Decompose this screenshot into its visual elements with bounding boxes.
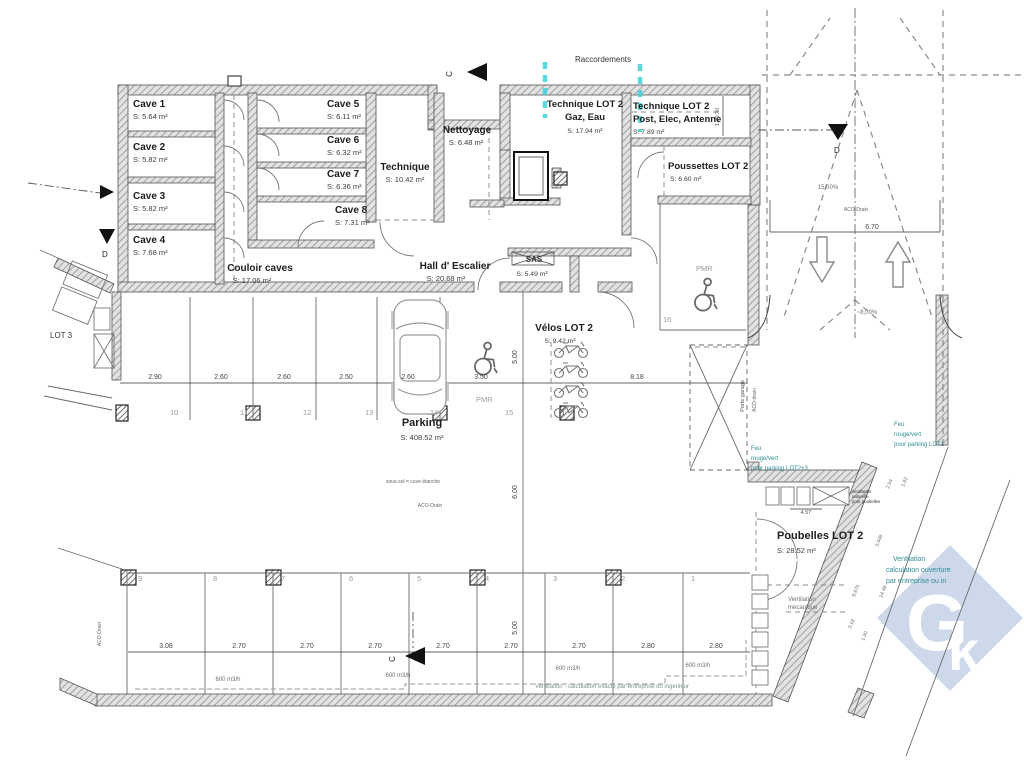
room-label-poubelles: Poubelles LOT 2 <box>777 530 863 542</box>
section-marker-c-bottom <box>405 647 425 665</box>
wheelchair-icon <box>475 342 497 374</box>
structural-columns <box>116 172 621 585</box>
feu2-1: Feu <box>751 446 761 452</box>
room-label-velos: Vélos LOT 2 <box>535 323 593 334</box>
room-sub-tech-lot2-post: Post, Elec, Antenne <box>633 114 721 125</box>
dim-600: 6.00 <box>512 485 519 499</box>
vent-note: Ventilation - calculation exacte par ent… <box>535 684 689 690</box>
dim-diag-2: 3.449 <box>874 534 884 548</box>
ramp-down-arrow <box>810 237 834 282</box>
dim-upper-3: 2.50 <box>339 374 353 381</box>
marker-d-right: D <box>834 146 840 155</box>
section-marker-c-top <box>467 63 487 81</box>
space-10: 10 <box>170 408 178 417</box>
room-area-hall: S: 20.68 m² <box>427 274 466 283</box>
space-2: 2 <box>621 574 625 583</box>
feu1-1: Feu <box>894 422 904 428</box>
space-5: 5 <box>417 574 421 583</box>
dim-500-lower: 5.00 <box>512 621 519 635</box>
dim-diag-5: 1.30 <box>860 630 869 641</box>
room-area-poussettes: S: 6.60 m² <box>670 176 702 183</box>
vent-teal-3: par entreprise ou in <box>886 578 946 585</box>
room-label-cave2: Cave 2 <box>133 142 166 153</box>
dim-diag-1: 1.62 <box>900 476 909 487</box>
aco-drain-left: ACO-Drain <box>97 622 103 647</box>
wheelchair-icon-16 <box>695 278 717 310</box>
slope-garage: ~8,00% <box>857 310 878 316</box>
vent-nat-3: pour poubelles <box>852 499 880 504</box>
dim-lower-2: 2.70 <box>300 643 314 650</box>
floor-plan-canvas: G k <box>0 0 1024 768</box>
raccordements-label: Raccordements <box>575 55 631 64</box>
feu1-2: rouge/vert <box>894 432 921 438</box>
lot3-label: LOT 3 <box>50 331 73 340</box>
car-icon <box>391 300 449 414</box>
dim-upper-right: 8.18 <box>630 374 644 381</box>
space-16: 16 <box>663 315 671 324</box>
dim-lower-0: 3.08 <box>159 643 173 650</box>
dim-upper-4: 2.60 <box>401 374 415 381</box>
space-12: 12 <box>303 408 311 417</box>
room-area-poubelles: S: 28.52 m² <box>777 546 816 555</box>
dim-diag-3: 8.675 <box>851 584 861 598</box>
vent-teal-2: calculation ouverture <box>886 567 951 574</box>
elevator-icon <box>514 152 548 200</box>
dim-upper-2: 2.60 <box>277 374 291 381</box>
door-arcs <box>224 100 797 601</box>
airflow-3: 600 m3/h <box>555 666 580 672</box>
room-area-nettoyage: S: 6.48 m² <box>449 138 484 147</box>
section-marker-d-left <box>99 229 115 244</box>
marker-c-bottom: C <box>388 656 397 662</box>
feu2-3: pour parking LOT2+3 <box>751 466 809 472</box>
slope-ramp: 15,00% <box>818 185 839 191</box>
dim-lower-5: 2.70 <box>504 643 518 650</box>
room-label-tech-lot2-gaz: Technique LOT 2 <box>547 99 623 110</box>
room-area-cave5: S: 6.11 m² <box>327 112 362 121</box>
room-area-cave8: S: 7.31 m² <box>335 218 370 227</box>
dim-457: 4.57 <box>801 510 812 516</box>
space-6: 6 <box>349 574 353 583</box>
room-area-cave2: S: 5.82 m² <box>133 155 168 164</box>
space-9: 9 <box>138 574 142 583</box>
room-area-cave4: S: 7.68 m² <box>133 248 168 257</box>
feu1-3: pour parking LOT1 <box>894 442 945 448</box>
pmr-label-16: PMR <box>696 264 713 273</box>
dim-lower-1: 2.70 <box>232 643 246 650</box>
aco-drain-gate: ACO-drain <box>752 388 758 412</box>
aco-drain-ramp: ACO-Drain <box>844 207 869 213</box>
dim-12030: 1.20.30 <box>715 108 721 126</box>
room-label-hall: Hall d' Escalier <box>420 261 491 272</box>
dim-upper-1: 2.60 <box>214 374 228 381</box>
space-7: 7 <box>281 574 285 583</box>
room-label-technique: Technique <box>380 162 430 173</box>
space-13: 13 <box>365 408 373 417</box>
room-label-cave7: Cave 7 <box>327 169 360 180</box>
room-label-cave6: Cave 6 <box>327 135 360 146</box>
dim-lower-4: 2.70 <box>436 643 450 650</box>
dim-ramp-width: 6.70 <box>865 224 879 231</box>
bike-icon <box>555 362 588 378</box>
room-label-couloir: Couloir caves <box>227 263 293 274</box>
section-marker-e <box>100 185 114 199</box>
vent-mech-1: Ventilation <box>788 597 816 603</box>
dim-diag-0: 2.54 <box>885 478 894 489</box>
marker-d-left: D <box>102 250 108 259</box>
porte-garage-label: Porte garage <box>740 380 746 412</box>
room-label-parking: Parking <box>402 417 442 429</box>
dim-lower-6: 2.70 <box>572 643 586 650</box>
space-1: 1 <box>691 574 695 583</box>
pmr-label-15: PMR <box>476 395 493 404</box>
watermark-letter-k: k <box>948 619 980 682</box>
space-14: 14 <box>430 408 438 417</box>
room-sub-tech-lot2-gaz: Gaz, Eau <box>565 112 605 123</box>
room-area-cave6: S: 6.32 m² <box>327 148 362 157</box>
room-area-parking: S: 408.52 m² <box>401 433 444 442</box>
room-label-cave4: Cave 4 <box>133 235 166 246</box>
dim-500-upper: 5.00 <box>512 350 519 364</box>
room-area-tech-lot2-gaz: S: 17.94 m² <box>567 128 603 135</box>
floor-plan-drawing: G k <box>0 0 1024 768</box>
room-area-cave7: S: 6.36 m² <box>327 182 362 191</box>
wall-duct-stub <box>228 76 241 86</box>
room-label-poussettes: Poussettes LOT 2 <box>668 161 748 172</box>
ramp-up-arrow <box>886 242 910 287</box>
space-4: 4 <box>485 574 489 583</box>
airflow-1: 600 m3/h <box>215 677 240 683</box>
marker-c-top: C <box>445 71 454 77</box>
room-area-sas: S: 5.49 m² <box>516 271 548 278</box>
room-label-cave8: Cave 8 <box>335 205 368 216</box>
dim-lower-3: 2.70 <box>368 643 382 650</box>
bike-icon <box>555 382 588 398</box>
feu2-2: rouge/vert <box>751 456 778 462</box>
space-8: 8 <box>213 574 217 583</box>
airflow-4: 600 m3/h <box>685 663 710 669</box>
dim-lower-7: 2.80 <box>641 643 655 650</box>
dim-diag-4: 14.49 <box>878 585 888 599</box>
space-3: 3 <box>553 574 557 583</box>
dim-upper-0: 2.90 <box>148 374 162 381</box>
room-label-cave5: Cave 5 <box>327 99 360 110</box>
room-label-tech-lot2-post: Technique LOT 2 <box>633 101 709 112</box>
space-15: 15 <box>505 408 513 417</box>
room-label-nettoyage: Nettoyage <box>443 125 492 136</box>
vent-mech-2: mécanique <box>788 605 818 611</box>
room-area-technique: S: 10.42 m² <box>386 175 425 184</box>
airflow-2: 600 m3/h <box>385 673 410 679</box>
room-area-cave3: S: 5.82 m² <box>133 204 168 213</box>
room-label-cave1: Cave 1 <box>133 99 166 110</box>
room-area-couloir: S: 17.06 m² <box>233 276 272 285</box>
aco-drain-parking: ACO-Drain <box>418 503 443 509</box>
vent-teal-1: Ventilation <box>893 556 925 563</box>
walls <box>54 85 948 718</box>
section-marker-d-right <box>828 124 848 140</box>
dim-upper-5: 3.50 <box>474 374 488 381</box>
room-area-cave1: S: 5.64 m² <box>133 112 168 121</box>
room-area-tech-lot2-post: S: 7.89 m² <box>633 129 665 136</box>
sous-sol-note: sous-sol = cuve étanche <box>386 479 440 485</box>
garage-door-icon <box>690 345 747 470</box>
room-label-sas: SAS <box>526 255 543 264</box>
dim-lower-8: 2.80 <box>709 643 723 650</box>
ramp <box>748 8 1024 445</box>
room-area-velos: S: 9.42 m² <box>544 338 576 345</box>
space-11: 11 <box>240 408 248 417</box>
room-label-cave3: Cave 3 <box>133 191 166 202</box>
dim-diag-6: 3.19 <box>847 618 856 629</box>
